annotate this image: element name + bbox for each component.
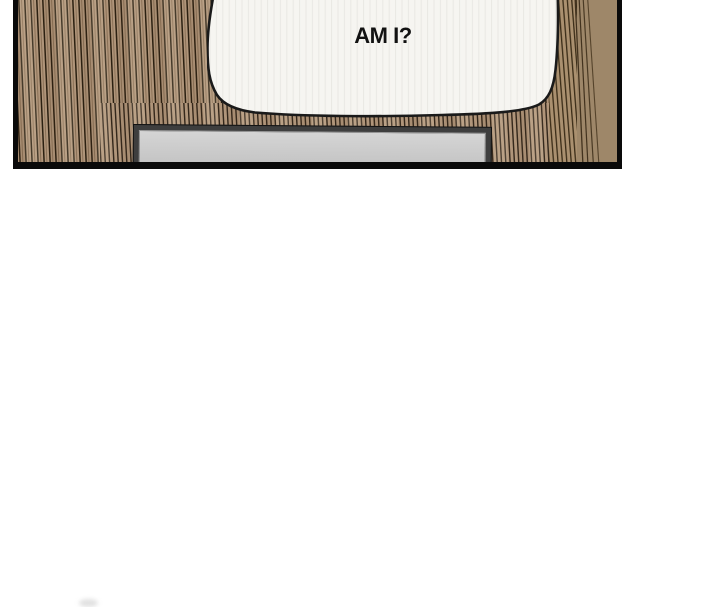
svg-text:AM I?: AM I? (354, 23, 411, 48)
